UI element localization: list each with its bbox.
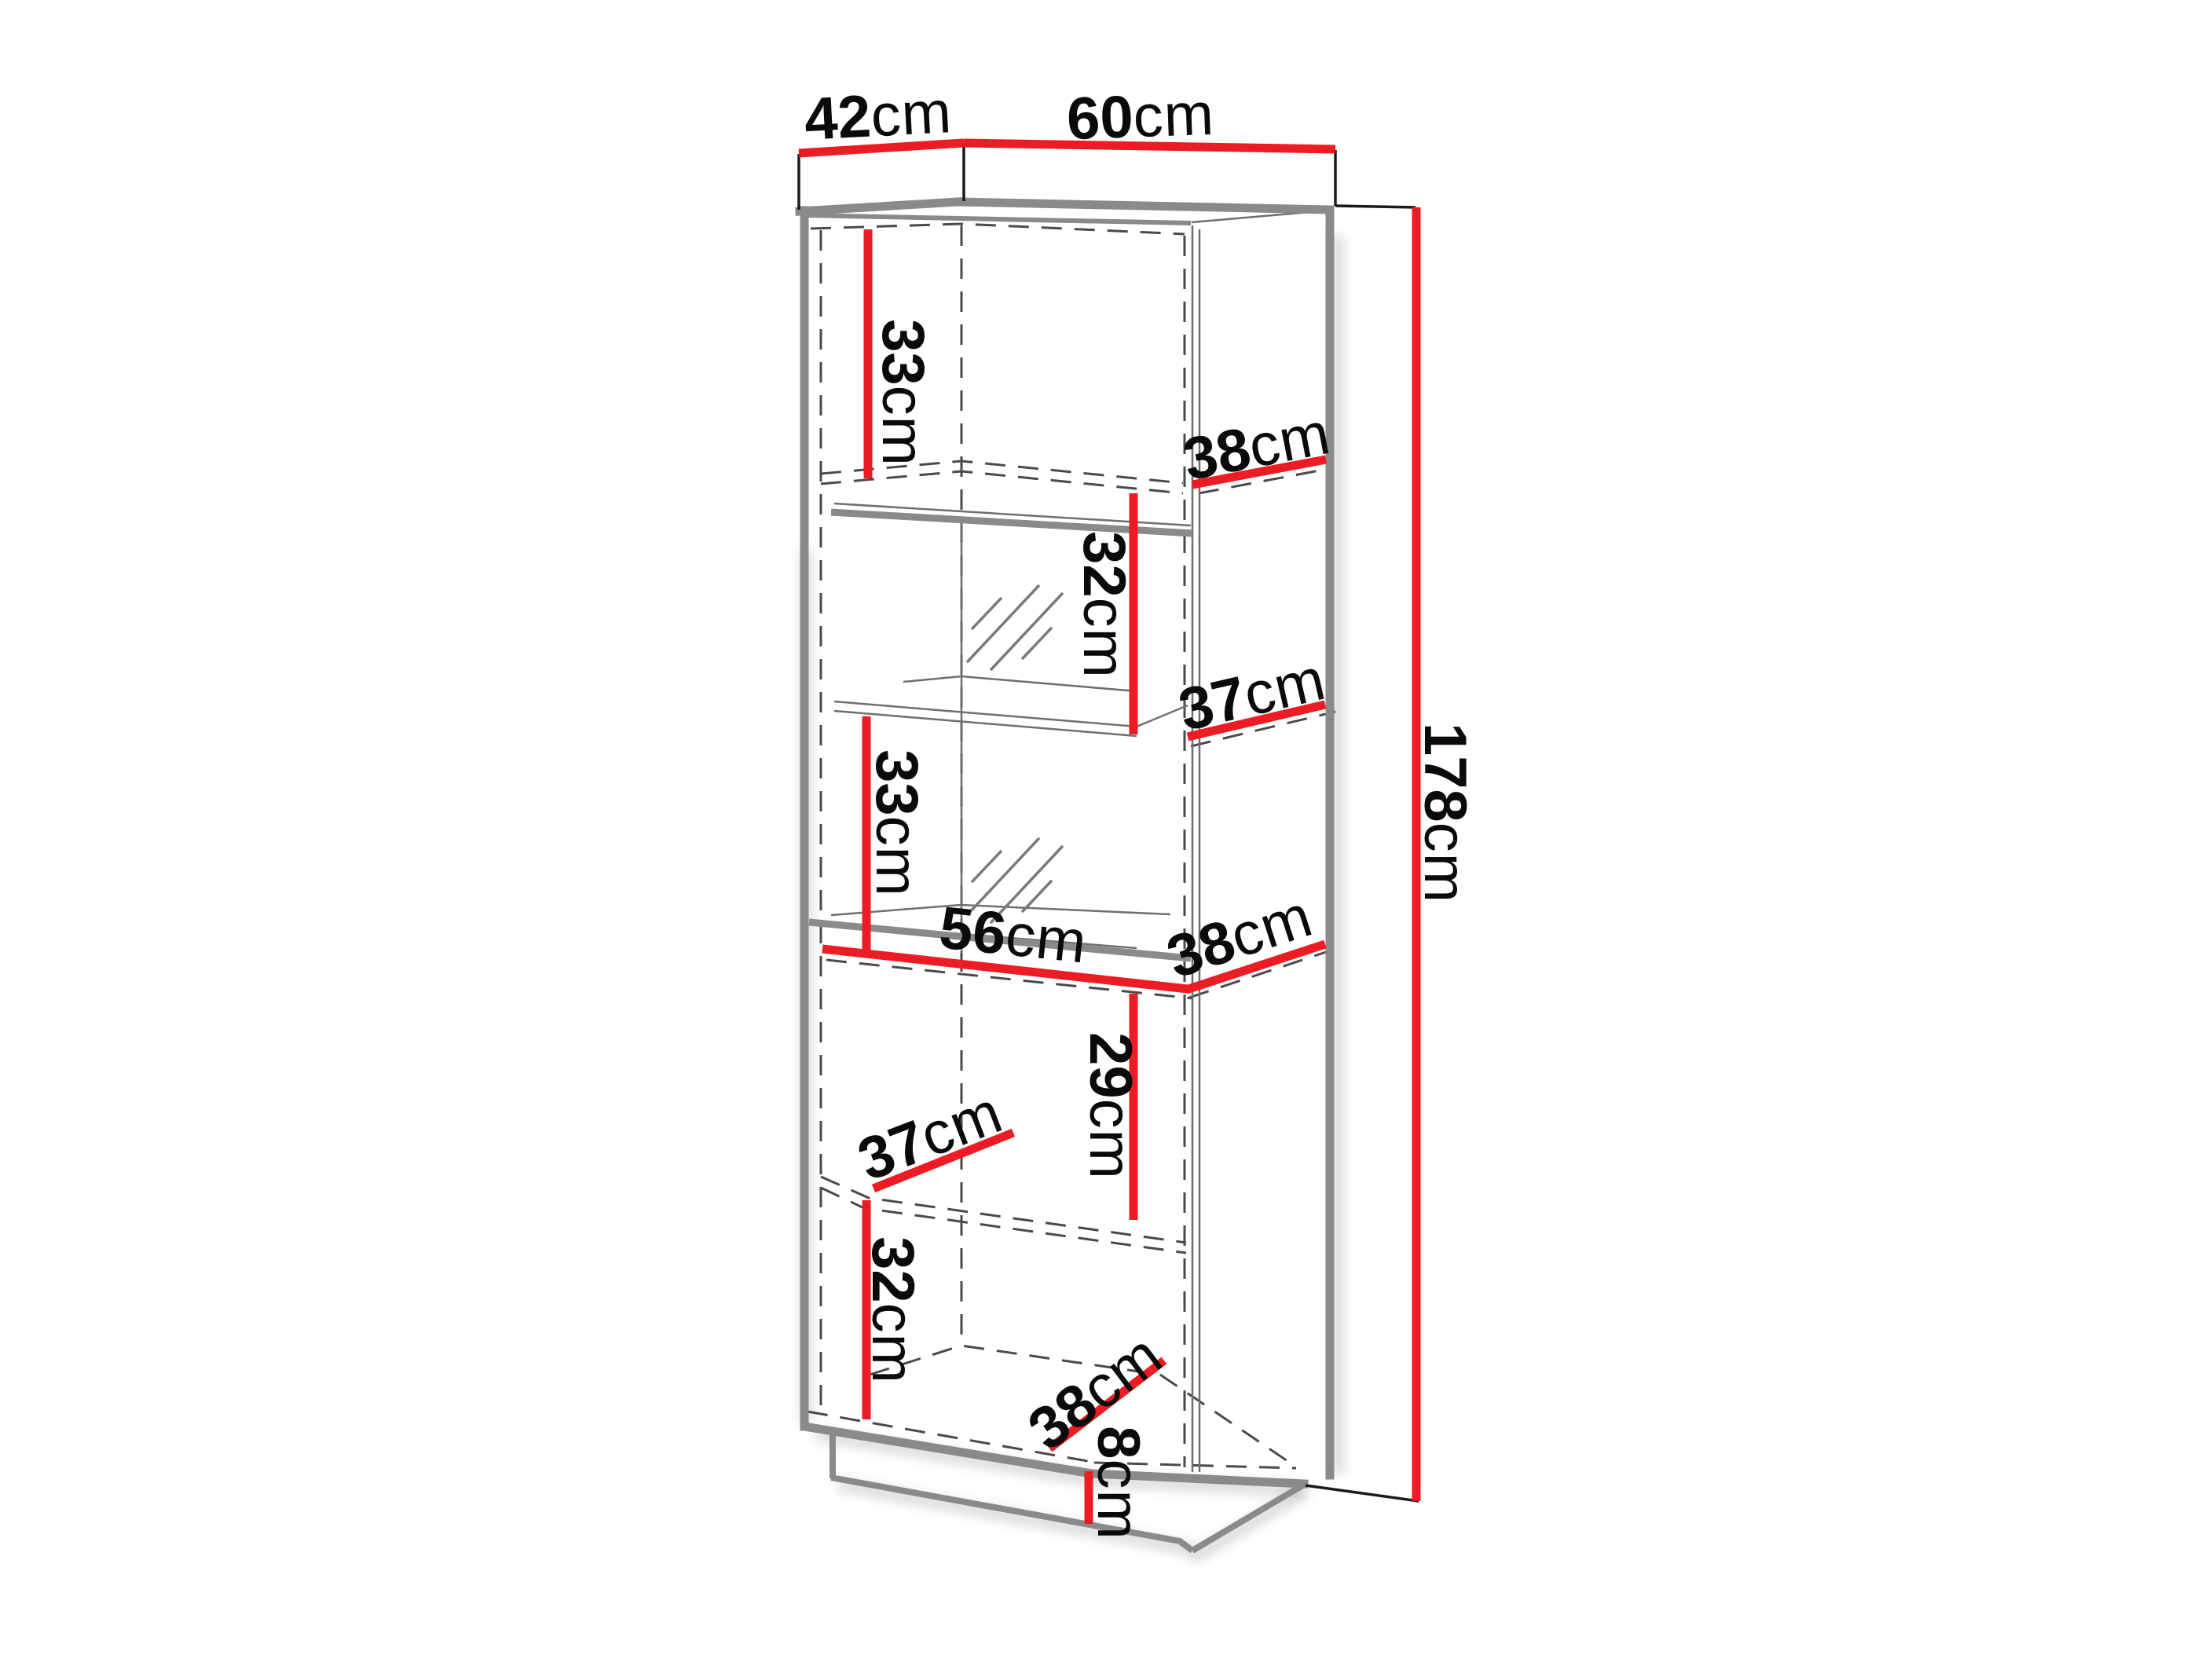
dim-label-plinth: 8cm <box>1086 1426 1152 1540</box>
glass-hatch-stroke <box>972 599 1001 628</box>
dim-label-upper-compartment: 33cm <box>870 319 937 467</box>
dim-label-lower-shelf-depth: 37cm <box>849 1079 1011 1194</box>
top-face-back-edge <box>804 215 1191 223</box>
dim-label-top-depth: 42cm <box>803 79 954 153</box>
dim-label-glass-shelf-depth: 37cm <box>1173 645 1331 743</box>
floor-right-edge <box>1160 1375 1292 1464</box>
dim-label-upper-shelf-depth: 38cm <box>1178 399 1336 493</box>
page: { "page": {"background": "#ffffff"}, "co… <box>0 0 2212 1659</box>
extension-to-height-line <box>1335 206 1415 207</box>
dim-label-top-width: 60cm <box>1066 80 1216 152</box>
top-left-edge <box>800 202 958 211</box>
dim-label-lower-compartment: 32cm <box>860 1236 927 1384</box>
diagram-canvas: 42cm 60cm 178cm 33cm 38cm 32cm 37cm 33cm… <box>0 0 2212 1659</box>
extension-bottom-right <box>1306 1485 1419 1501</box>
dim-label-glass-lower: 33cm <box>864 749 931 897</box>
dim-label-overall-height: 178cm <box>1412 723 1479 903</box>
upper-shelf-back-edge-bottom <box>821 471 1183 493</box>
glass-hatch-stroke <box>972 851 1001 881</box>
dimension-labels: 42cm 60cm 178cm 33cm 38cm 32cm 37cm 33cm… <box>803 79 1479 1540</box>
dim-label-lower-upper-compartment: 29cm <box>1078 1032 1144 1180</box>
glass-hatch-stroke <box>991 594 1062 669</box>
top-front-edge <box>958 202 1330 210</box>
glass-hatching <box>968 586 1062 922</box>
plinth-right-edge <box>1192 1485 1304 1551</box>
dim-label-glass-upper: 32cm <box>1071 531 1138 679</box>
